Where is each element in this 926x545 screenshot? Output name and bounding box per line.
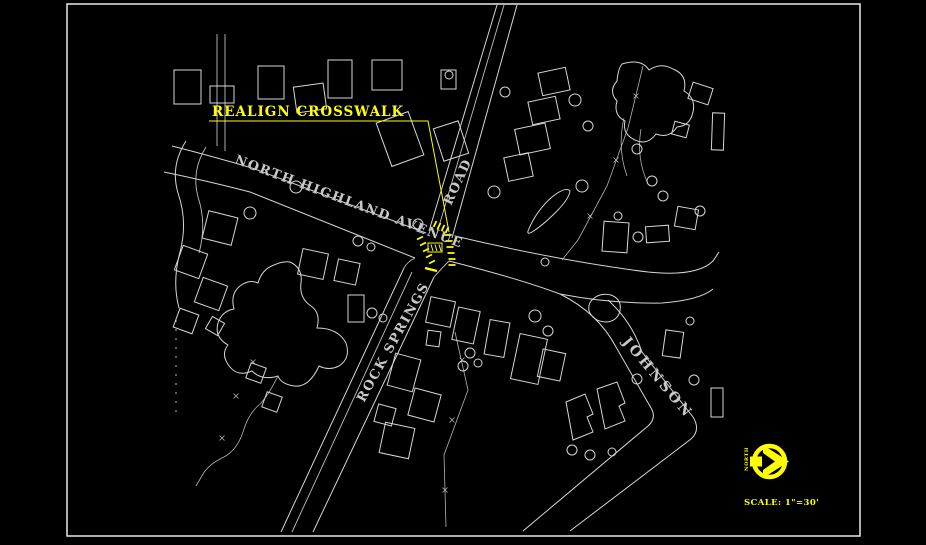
sheet-border: [67, 4, 860, 536]
trees: [244, 71, 705, 460]
scale-text: SCALE: 1"=30': [744, 498, 819, 508]
site-plan-canvas[interactable]: REALIGN CROSSWALK NORTH HIGHLAND AVENUE …: [0, 0, 926, 545]
north-label: NORTH: [744, 447, 750, 471]
street-label-north-highland-avenue: NORTH HIGHLAND AVENUE: [233, 153, 466, 252]
street-label-road: ROAD: [441, 156, 476, 207]
realign-crosswalk-label: REALIGN CROSSWALK: [212, 104, 405, 120]
street-label-johnson: JOHNSON: [618, 333, 696, 422]
north-arrow: NORTH: [744, 445, 789, 478]
north-arrow-shaft: [750, 457, 762, 467]
street-label-rock-springs: ROCK SPRINGS: [354, 280, 432, 405]
drawing-viewport[interactable]: REALIGN CROSSWALK NORTH HIGHLAND AVENUE …: [0, 0, 926, 545]
